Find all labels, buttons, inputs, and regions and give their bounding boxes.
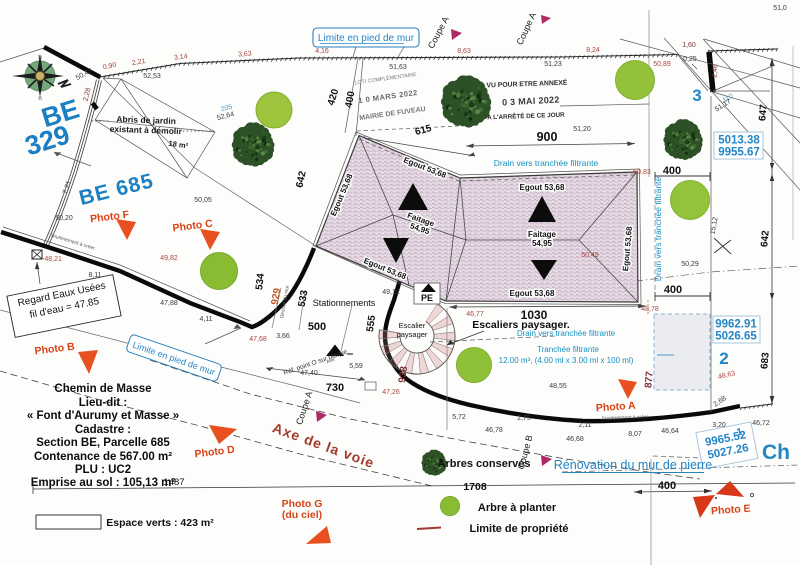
svg-text:4,16: 4,16 [315, 48, 329, 55]
svg-text:Arbres conservés: Arbres conservés [438, 458, 531, 470]
svg-text:50,29: 50,29 [681, 261, 699, 268]
svg-text:50,20: 50,20 [55, 215, 73, 222]
svg-text:Faitage: Faitage [528, 230, 557, 239]
svg-text:3,20: 3,20 [712, 422, 726, 429]
svg-text:730: 730 [326, 382, 344, 394]
svg-text:9955.67: 9955.67 [718, 147, 760, 159]
svg-text:Limite de propriété: Limite de propriété [469, 523, 568, 535]
svg-text:3: 3 [692, 86, 701, 105]
svg-text:2,11: 2,11 [578, 422, 591, 429]
svg-text:Ch: Ch [762, 441, 790, 464]
svg-text:paysager: paysager [397, 330, 428, 339]
svg-text:Arbre à planter: Arbre à planter [478, 502, 557, 514]
svg-text:50,49: 50,49 [581, 252, 599, 259]
svg-text:Drain vers tranchée filtrante: Drain vers tranchée filtrante [494, 158, 599, 168]
svg-text:Espace verts : 423 m²: Espace verts : 423 m² [106, 517, 214, 529]
svg-text:Cadastre :: Cadastre : [75, 424, 131, 436]
svg-text:Tranchée filtrante: Tranchée filtrante [537, 345, 600, 354]
svg-text:683: 683 [759, 352, 771, 370]
svg-text:50,89: 50,89 [653, 61, 671, 68]
svg-text:46,72: 46,72 [752, 420, 770, 427]
svg-text:PLU : UC2: PLU : UC2 [75, 464, 131, 476]
svg-text:5026.65: 5026.65 [715, 331, 757, 343]
svg-text:3,63: 3,63 [238, 51, 252, 59]
svg-text:8,24: 8,24 [586, 47, 600, 54]
svg-text:« Font d'Aurumy et Masse »: « Font d'Aurumy et Masse » [27, 410, 179, 422]
svg-text:8,11: 8,11 [88, 272, 101, 279]
svg-text:Rénovation du mur de pierre: Rénovation du mur de pierre [554, 458, 712, 472]
svg-text:Chemin de Masse: Chemin de Masse [54, 383, 151, 395]
svg-text:3,66: 3,66 [276, 333, 290, 340]
svg-text:47,68: 47,68 [249, 336, 267, 343]
svg-text:(du ciel): (du ciel) [282, 509, 322, 521]
svg-text:1,60: 1,60 [682, 42, 696, 49]
svg-text:2,46: 2,46 [712, 64, 720, 78]
svg-text:50,83: 50,83 [633, 169, 651, 176]
svg-text:8,07: 8,07 [628, 431, 642, 438]
svg-text:-48,21: -48,21 [42, 256, 62, 263]
svg-text:50,05: 50,05 [194, 197, 212, 204]
svg-text:Egout 53,68: Egout 53,68 [520, 183, 565, 192]
svg-text:Drain vers tranchée filtrante: Drain vers tranchée filtrante [653, 177, 663, 282]
svg-text:12.00 m³, (4.00 ml x 3.00 ml x: 12.00 m³, (4.00 ml x 3.00 ml x 100 ml) [499, 356, 634, 365]
svg-text:400: 400 [663, 165, 681, 177]
svg-text:46,77: 46,77 [466, 311, 484, 318]
svg-text:400: 400 [664, 284, 682, 296]
svg-text:Emprise au sol : 105,13 m²: Emprise au sol : 105,13 m² [31, 477, 176, 489]
svg-text:Lieu-dit :: Lieu-dit : [79, 397, 128, 409]
svg-text:900: 900 [537, 130, 558, 144]
svg-text:46,64: 46,64 [661, 428, 679, 435]
svg-text:5013.38: 5013.38 [718, 135, 760, 147]
svg-text:51,63: 51,63 [389, 64, 407, 71]
svg-text:1708: 1708 [463, 481, 487, 493]
svg-text:51,0: 51,0 [773, 5, 787, 12]
svg-text:1030: 1030 [521, 308, 548, 322]
svg-text:52,53: 52,53 [143, 73, 161, 80]
svg-text:642: 642 [759, 230, 771, 248]
svg-text:46,78: 46,78 [485, 427, 503, 434]
svg-text:Section BE, Parcelle 685: Section BE, Parcelle 685 [36, 437, 170, 449]
svg-text:49,12: 49,12 [382, 289, 400, 296]
svg-text:54,95: 54,95 [532, 239, 553, 248]
svg-text:Limite en pied de mur: Limite en pied de mur [318, 33, 415, 44]
svg-text:Egout 53,68: Egout 53,68 [510, 289, 555, 298]
svg-text:47,40: 47,40 [300, 370, 318, 377]
svg-text:534: 534 [254, 272, 267, 290]
svg-text:47,88: 47,88 [160, 300, 178, 307]
svg-text:PE: PE [421, 293, 433, 303]
svg-text:47,26: 47,26 [382, 389, 400, 396]
svg-text:4,11: 4,11 [199, 316, 212, 323]
svg-text:2: 2 [719, 349, 728, 368]
svg-text:n: n [38, 96, 41, 102]
svg-text:9962.91: 9962.91 [715, 319, 757, 331]
svg-text:51,23: 51,23 [544, 61, 562, 68]
svg-text:0,25: 0,25 [683, 56, 697, 63]
svg-text:647: 647 [757, 104, 769, 122]
svg-text:Stationnements: Stationnements [313, 298, 376, 308]
svg-text:46,68: 46,68 [566, 436, 584, 443]
svg-text:2,75: 2,75 [517, 415, 531, 422]
svg-text:400: 400 [658, 480, 676, 492]
svg-text:49,82: 49,82 [160, 255, 178, 262]
svg-text:48,78: 48,78 [641, 306, 659, 313]
svg-text:8,63: 8,63 [457, 48, 471, 55]
svg-text:48,55: 48,55 [549, 383, 567, 390]
svg-text:877: 877 [643, 371, 655, 389]
svg-text:51,20: 51,20 [573, 126, 591, 133]
svg-text:Contenance de 567.00 m²: Contenance de 567.00 m² [34, 451, 172, 463]
svg-text:500: 500 [308, 321, 326, 333]
svg-text:5,72: 5,72 [452, 414, 466, 421]
svg-text:1487: 1487 [163, 477, 184, 488]
svg-text:Escalier: Escalier [399, 321, 426, 330]
svg-text:5,59: 5,59 [349, 363, 363, 370]
